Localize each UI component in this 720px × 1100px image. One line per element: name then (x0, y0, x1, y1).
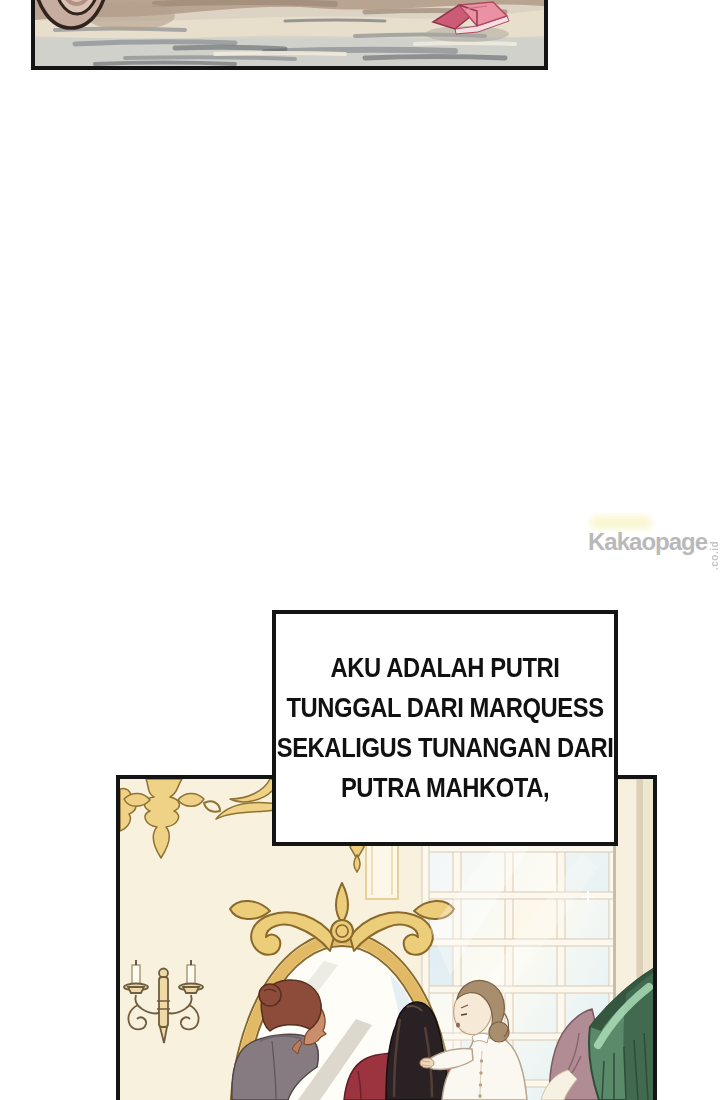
dialogue-line: AKU ADALAH PUTRI (277, 648, 614, 688)
dialogue-line: SEKALIGUS TUNANGAN DARI (277, 728, 614, 768)
hair-bun-top-view (35, 0, 175, 30)
dialogue-text: AKU ADALAH PUTRI TUNGGAL DARI MARQUESS S… (277, 648, 614, 808)
dialogue-line: TUNGGAL DARI MARQUESS (277, 688, 614, 728)
kakaopage-watermark: Kakaopage .co.id (586, 512, 720, 576)
comic-page: { "comic": { "dialogue": { "lines": [ "A… (0, 0, 720, 1100)
comic-panel-top (31, 0, 548, 70)
floor-scene-art (35, 0, 544, 66)
dialogue-line: PUTRA MAHKOTA, (277, 768, 614, 808)
watermark-brand-text: Kakaopage (588, 528, 707, 556)
speech-box: AKU ADALAH PUTRI TUNGGAL DARI MARQUESS S… (272, 610, 618, 846)
watermark-domain-text: .co.id (709, 518, 720, 570)
